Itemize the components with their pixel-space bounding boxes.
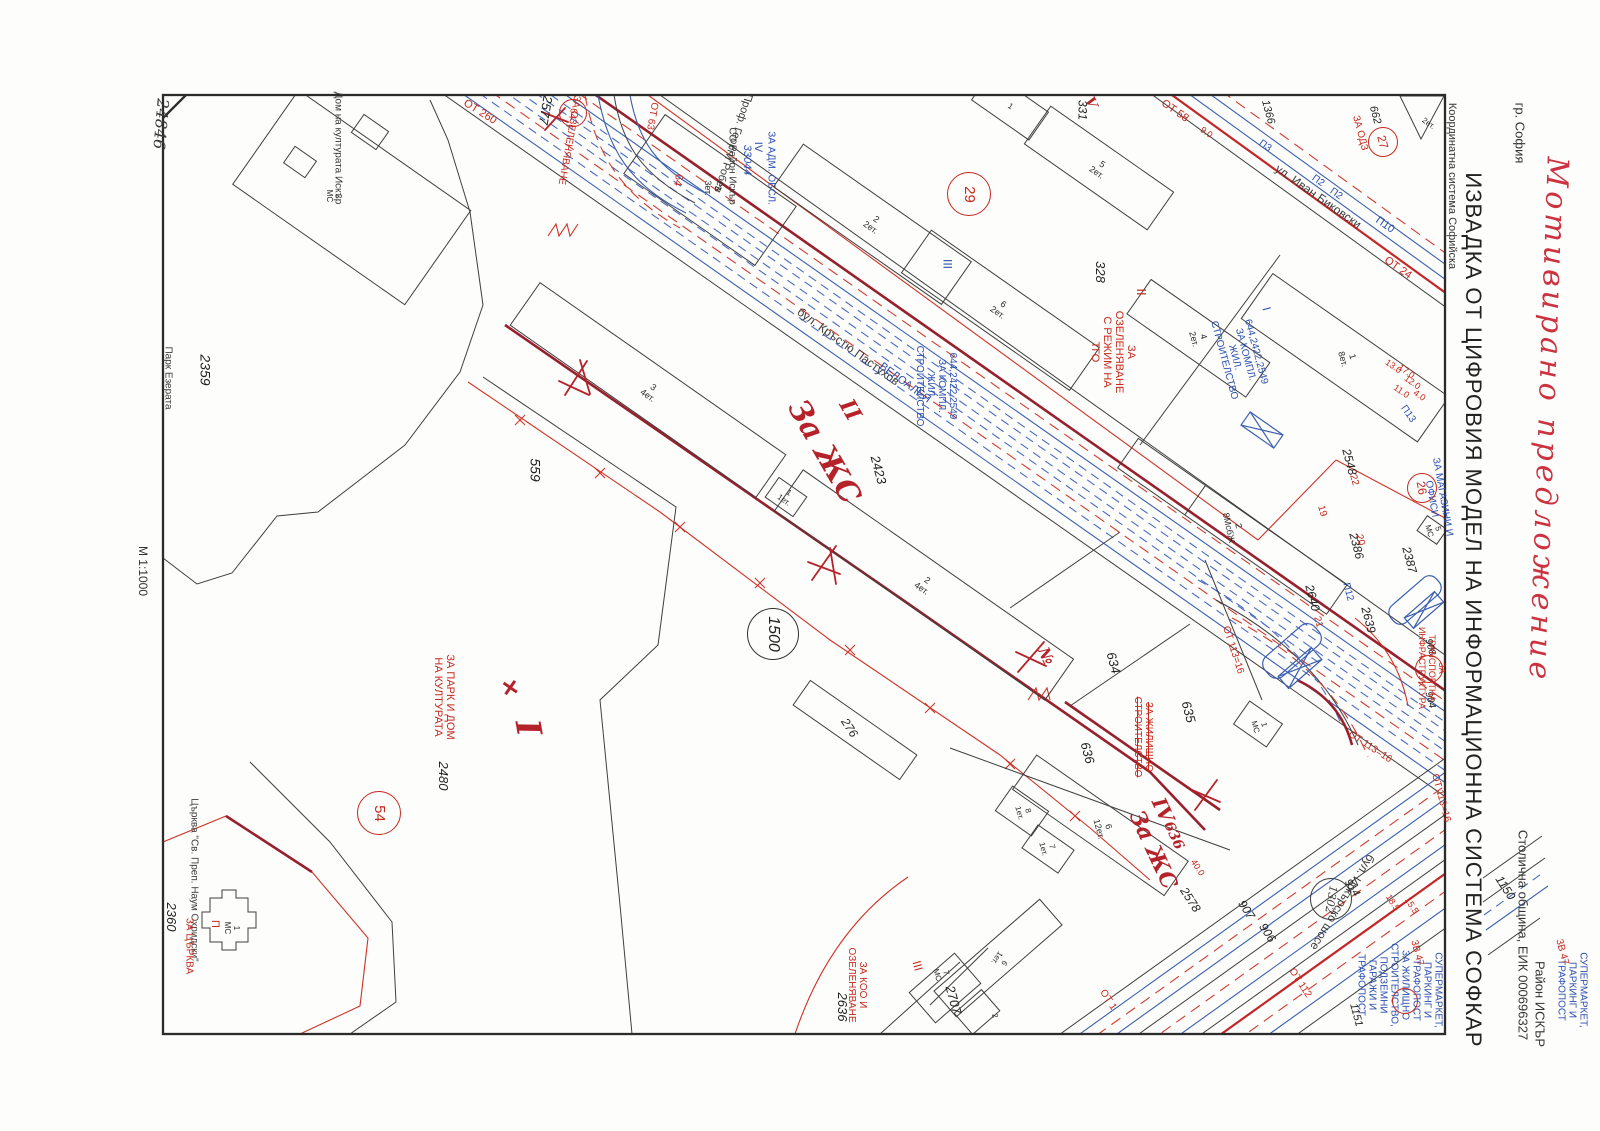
regulation-lines	[163, 95, 1445, 1034]
scanned-map-page: Проф. Георги Робевул. Иван Биковскибул. …	[0, 0, 1600, 1131]
sheet-border	[163, 95, 1445, 1034]
church-building	[202, 890, 256, 950]
road-georgi-robev	[585, 95, 705, 228]
road-krastyu-pastuhov	[135, 0, 1577, 854]
road-ivan-bikovski	[1035, 0, 1531, 350]
road-iskarsko-shose	[996, 661, 1600, 1131]
sheet-content	[135, 0, 1600, 1131]
junction	[1198, 412, 1445, 757]
margin-overflow-lines	[1483, 836, 1548, 955]
red-scribbles	[542, 108, 1220, 810]
map-linework	[0, 0, 1600, 1131]
parcel-lines	[163, 95, 1445, 1034]
